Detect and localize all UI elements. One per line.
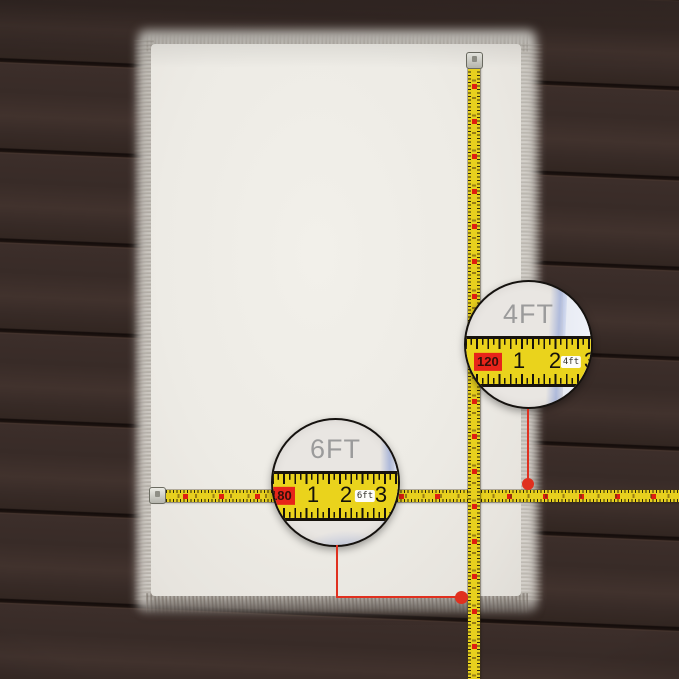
unit-marker-badge: 6ft (355, 490, 375, 502)
tape-ticks (464, 374, 593, 384)
scale-number: 2 (549, 348, 561, 374)
measure-point-dot (522, 478, 534, 490)
measure-guide-line-horizontal-6ft (336, 596, 462, 598)
tape-end-clip-icon (466, 52, 483, 69)
measure-guide-line-vertical-4ft (527, 409, 529, 480)
tape-ticks (464, 339, 593, 349)
scale-number: 3 (375, 482, 387, 508)
magnifier-callout-6ft: 6FT 180 1 2 6ft 3 (271, 418, 400, 547)
product-photo-stage: 4FT 120 1 2 4ft 3 6FT 180 1 2 6ft 3 (0, 0, 679, 679)
unit-marker-badge: 4ft (561, 356, 581, 368)
callout-title: 6FT (273, 434, 398, 465)
scale-number: 1 (307, 482, 319, 508)
clip-slot (155, 491, 160, 497)
measure-point-dot (455, 591, 468, 604)
rug-edge-highlight-bottom (291, 522, 390, 547)
magnified-tape-scale: 120 1 2 4ft 3 (464, 336, 593, 387)
scale-number: 2 (340, 482, 352, 508)
scale-number: 1 (513, 348, 525, 374)
callout-title: 4FT (466, 299, 591, 330)
measure-guide-line-vertical-6ft (336, 545, 338, 597)
magnified-tape-scale: 180 1 2 6ft 3 (271, 471, 400, 521)
scale-start-badge: 120 (474, 352, 502, 370)
tape-end-clip-icon (149, 487, 166, 504)
tape-ticks (271, 508, 400, 518)
clip-slot (472, 56, 477, 62)
scale-start-badge: 180 (271, 487, 295, 505)
magnifier-callout-4ft: 4FT 120 1 2 4ft 3 (464, 280, 593, 409)
horizontal-tape-measure (152, 490, 679, 502)
